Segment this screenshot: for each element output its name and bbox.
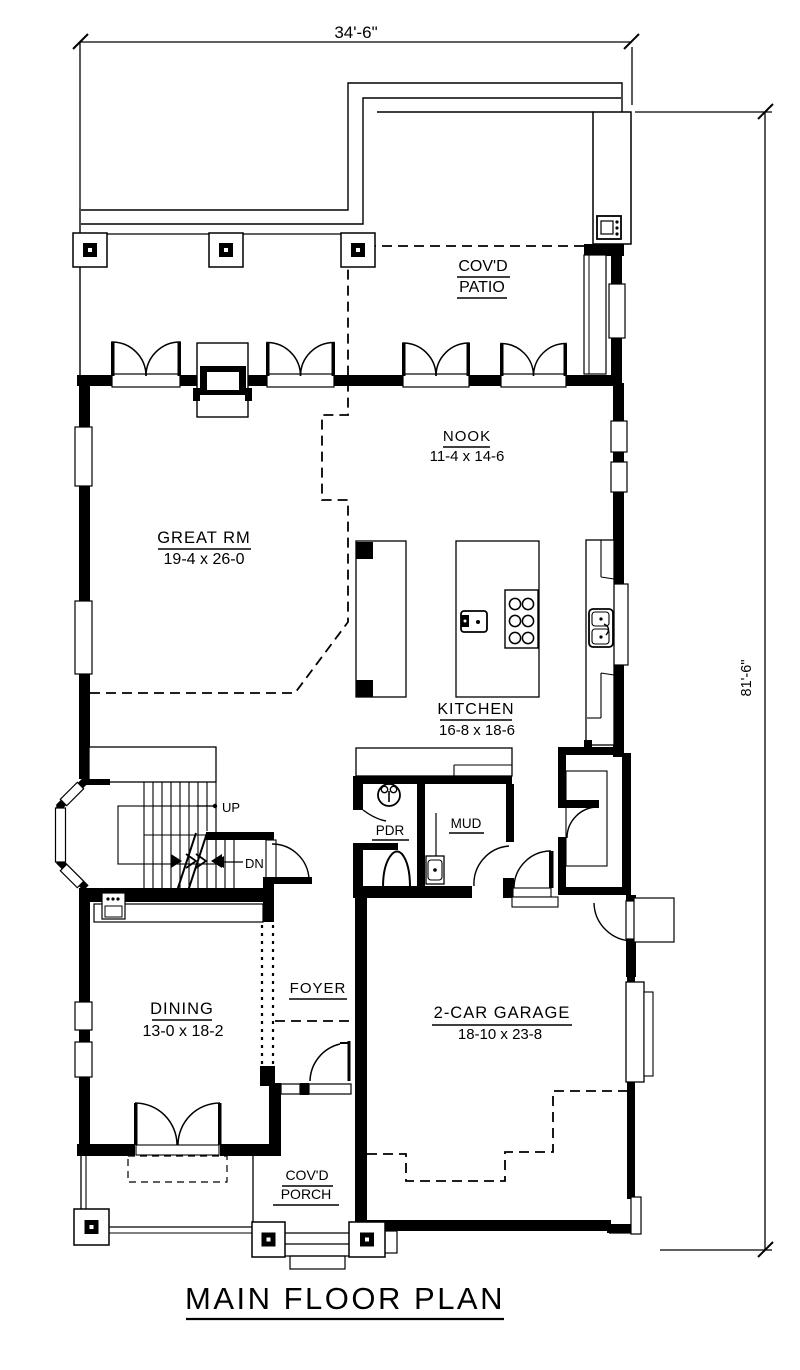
svg-text:13-0 x 18-2: 13-0 x 18-2 [143,1023,224,1040]
svg-text:KITCHEN: KITCHEN [437,701,514,718]
svg-text:COV'D: COV'D [458,258,507,275]
svg-text:18-10 x 23-8: 18-10 x 23-8 [458,1026,542,1043]
svg-text:NOOK: NOOK [443,428,491,445]
svg-text:FOYER: FOYER [290,980,347,997]
svg-text:UP: UP [222,800,240,815]
svg-text:34'-6": 34'-6" [334,23,377,42]
svg-text:MUD: MUD [451,816,482,831]
svg-text:PDR: PDR [376,823,405,838]
svg-text:19-4 x 26-0: 19-4 x 26-0 [164,551,245,568]
svg-text:DN: DN [245,856,264,871]
svg-text:2-CAR GARAGE: 2-CAR GARAGE [434,1004,571,1022]
svg-text:PORCH: PORCH [281,1186,332,1202]
svg-text:81'-6": 81'-6" [739,660,755,697]
svg-text:16-8 x 18-6: 16-8 x 18-6 [439,722,515,739]
svg-text:PATIO: PATIO [459,279,505,296]
svg-text:DINING: DINING [150,1000,214,1018]
svg-text:COV'D: COV'D [285,1167,328,1183]
svg-text:MAIN FLOOR PLAN: MAIN FLOOR PLAN [185,1281,505,1316]
svg-text:11-4 x 14-6: 11-4 x 14-6 [430,448,505,465]
svg-text:GREAT RM: GREAT RM [157,529,251,547]
